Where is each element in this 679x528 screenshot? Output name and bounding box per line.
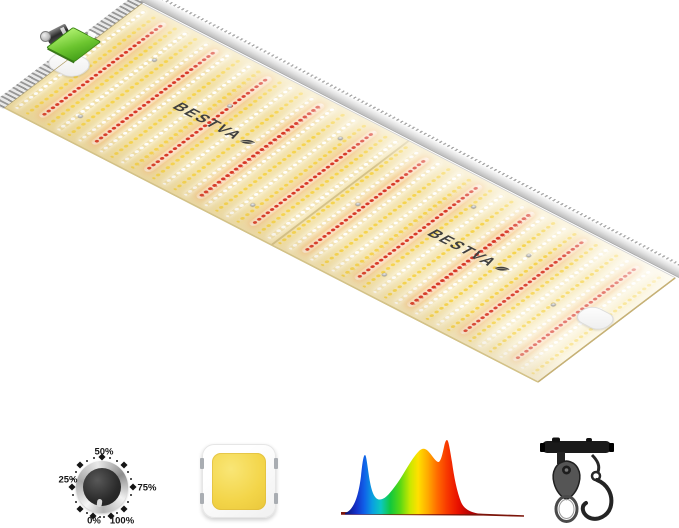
dimmer-label-100: 100% xyxy=(110,516,134,527)
dimmer-knob-icon: 50% 25% 75% 0% 100% xyxy=(40,438,165,528)
carabiner-inner xyxy=(559,500,574,519)
metal-hook xyxy=(583,480,612,519)
chip-contact-tab xyxy=(274,458,278,469)
dimmer-label-25: 25% xyxy=(58,475,77,486)
knob-marker-dot xyxy=(130,478,132,480)
knob-marker-diamond xyxy=(77,505,84,512)
knob-marker-dot xyxy=(103,516,105,518)
knob-marker-diamond xyxy=(120,505,127,512)
connector-tip-icon xyxy=(40,31,51,42)
hanger-bar-nub xyxy=(586,438,592,442)
knob-marker-dot xyxy=(75,501,77,503)
screw-icon xyxy=(471,205,477,209)
hanger-rope xyxy=(592,455,599,472)
hanger-bar-nub xyxy=(552,438,560,443)
grow-light-panel: BESTVA BESTVA xyxy=(5,4,675,382)
knob-marker-dot xyxy=(127,501,129,503)
hanger-bar-cap xyxy=(609,443,614,452)
knob-marker-dot xyxy=(86,512,88,514)
led-board: BESTVA BESTVA xyxy=(5,4,675,382)
knob-marker-dot xyxy=(130,494,132,496)
screw-icon xyxy=(381,273,387,277)
dimmer-label-75: 75% xyxy=(137,483,156,494)
knob-marker-dot xyxy=(86,460,88,462)
knob-marker-diamond xyxy=(129,483,136,490)
knob-marker-dot xyxy=(72,494,74,496)
led-chip-icon xyxy=(200,442,278,520)
knob-marker-dot xyxy=(116,460,118,462)
dimmer-label-0: 0% xyxy=(87,516,101,527)
dimmer-label-50: 50% xyxy=(94,447,113,458)
chip-contact-tab xyxy=(200,493,204,504)
rope-ratchet-hanger-icon xyxy=(528,430,628,525)
chip-contact-tab xyxy=(200,458,204,469)
chip-contact-tab xyxy=(274,493,278,504)
knob-marker-dot xyxy=(116,512,118,514)
knob-marker-dot xyxy=(75,471,77,473)
hanger-bar xyxy=(542,441,611,453)
product-image: BESTVA BESTVA xyxy=(0,0,679,528)
hanger-bar-cap xyxy=(540,443,545,452)
spectrum-curve xyxy=(345,440,483,515)
knob-marker-diamond xyxy=(120,462,127,469)
ratchet-axle-pin xyxy=(565,468,569,472)
chip-phosphor-die xyxy=(212,453,266,510)
light-spectrum-icon xyxy=(333,432,530,520)
knob-marker-dot xyxy=(127,471,129,473)
leaf-icon xyxy=(237,136,256,147)
